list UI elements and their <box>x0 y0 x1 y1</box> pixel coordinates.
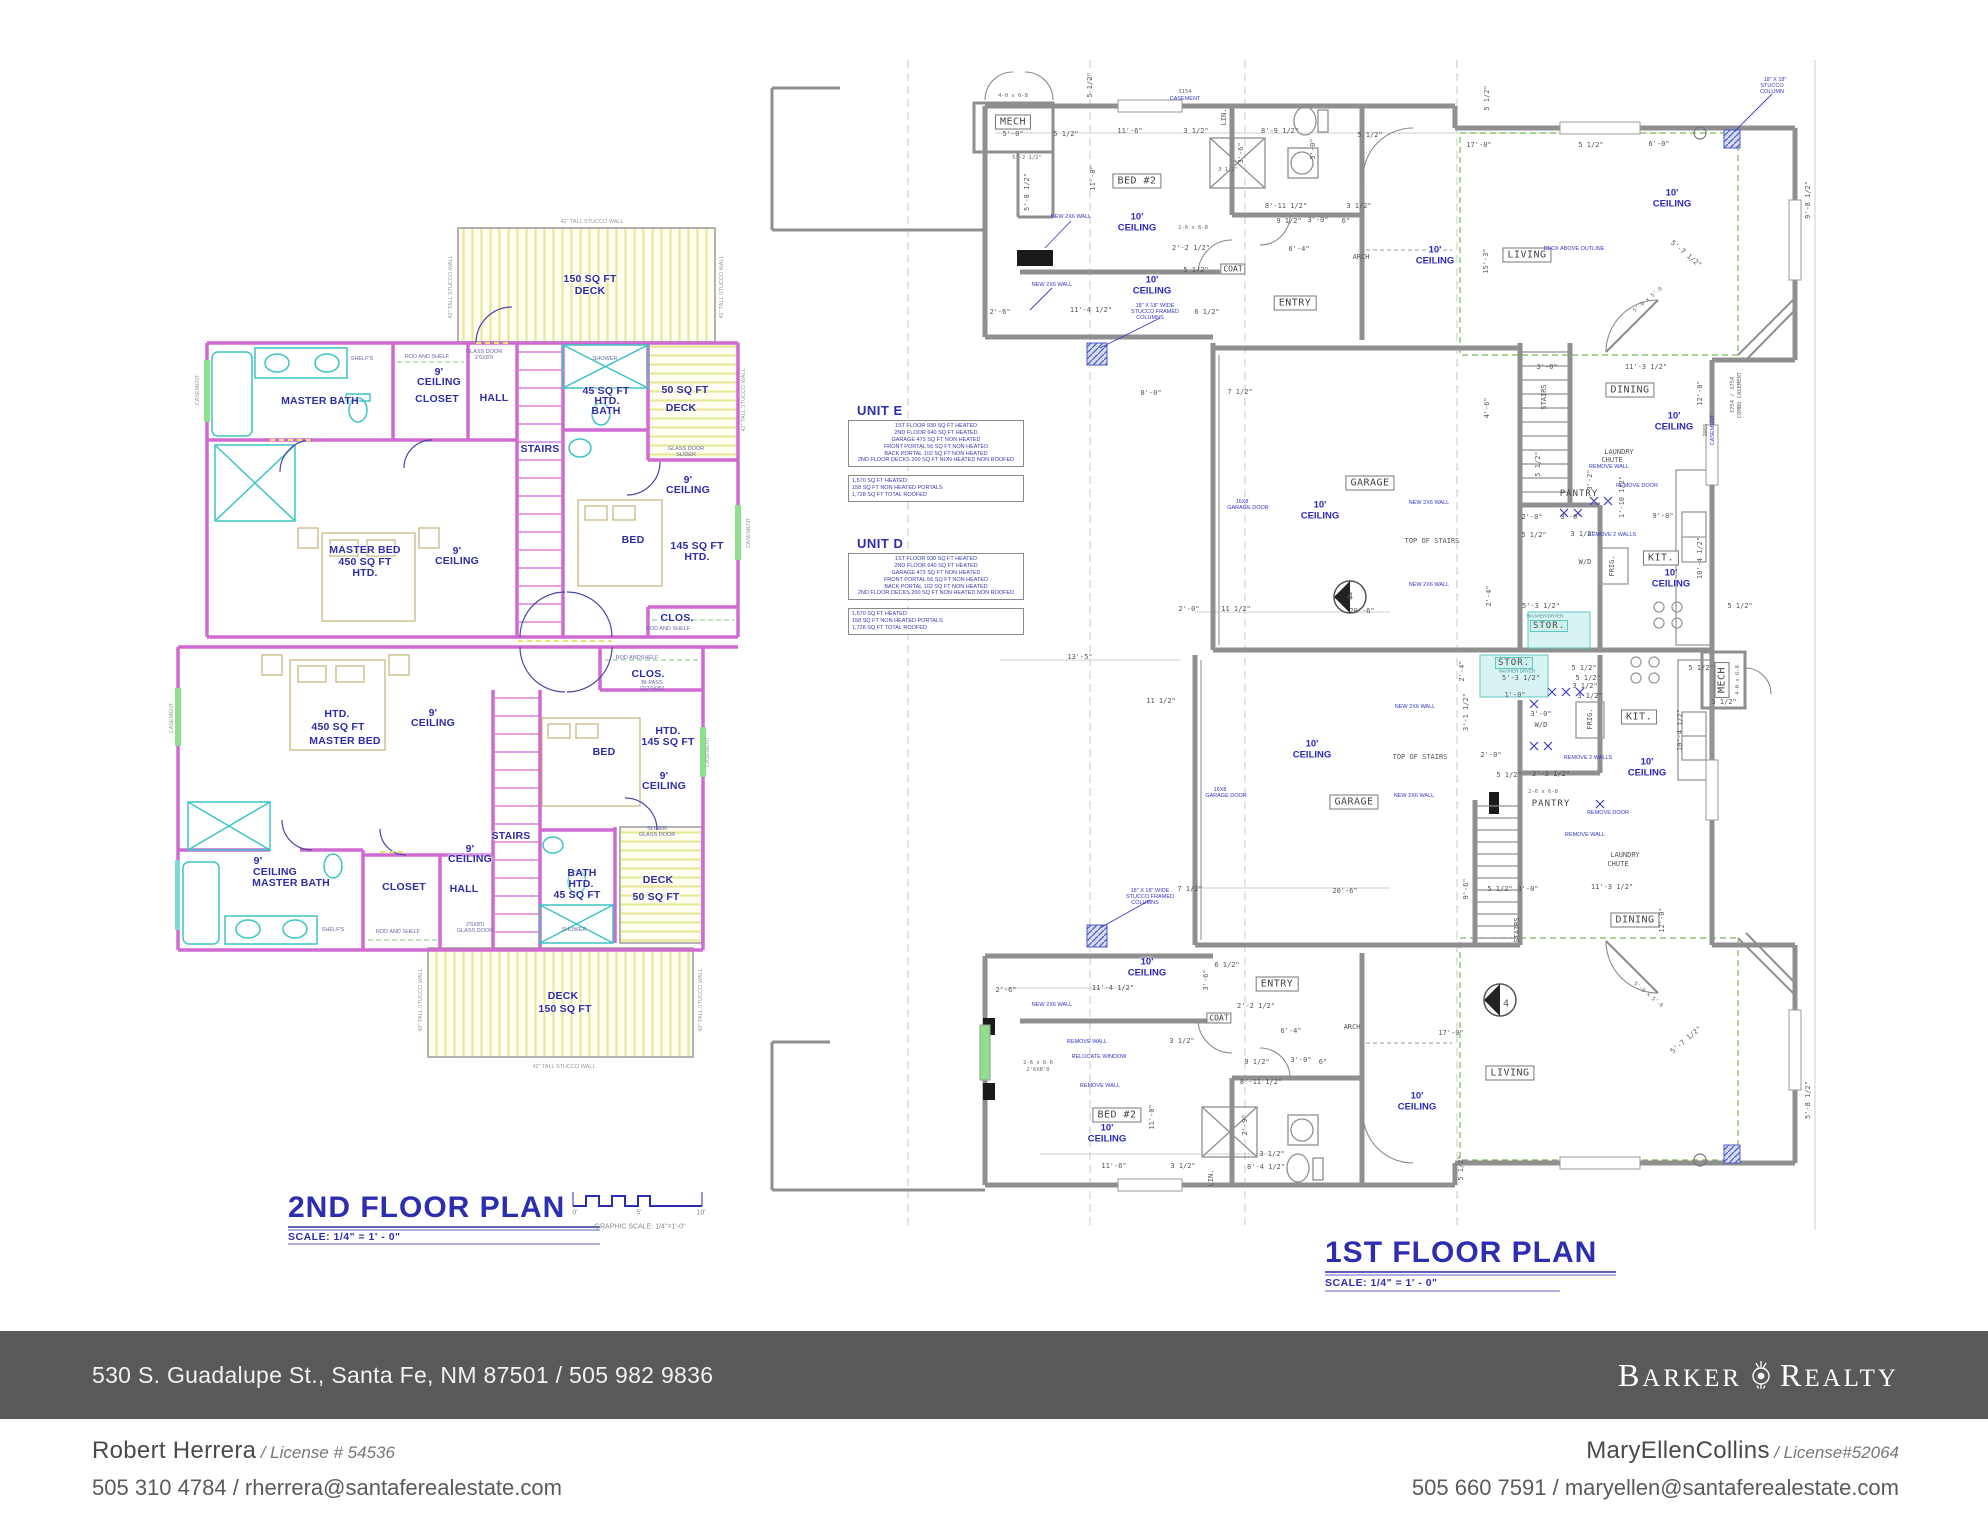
floor2-label: HALL <box>450 883 479 895</box>
floor1-label: 5'-3 1/2" <box>1502 674 1540 682</box>
floor1-label: CEILING <box>1416 256 1455 267</box>
floor1-label: 3 1/2" <box>1572 682 1597 690</box>
agent-license: / License # 54536 <box>261 1443 395 1462</box>
floor1-scale-note: SCALE: 1/4" = 1' - 0" <box>1325 1277 1438 1289</box>
floor1-label: 3'-3 1/2" <box>1532 770 1570 778</box>
floor1-label: 3 1/2" <box>1577 692 1602 700</box>
floor1-label: 5'-8 1/2" <box>1023 173 1031 211</box>
floor1-label: COMBO CASEMENT <box>1737 372 1743 418</box>
floor1-label: 9 1/2" <box>1276 217 1301 225</box>
floor1-label: 17'-0" <box>1466 141 1491 149</box>
floor1-label: CEILING <box>1088 1134 1127 1145</box>
floor2-furniture <box>262 500 662 806</box>
floor1-label: CEILING <box>1118 223 1157 234</box>
floor1-label: CEILING <box>1293 750 1332 761</box>
floor1-label: NEW 2X6 WALL <box>1032 1002 1072 1008</box>
unit-box-line: 1ST FLOOR 930 SQ FT HEATED <box>852 423 1020 430</box>
floor2-label: DECK <box>643 874 674 886</box>
floor2-label: MASTER BED <box>329 544 400 556</box>
floor1-label: 6" <box>1319 1058 1327 1066</box>
floor2-label: GLASS DOOR <box>457 928 493 934</box>
graphic-scale-label: 5' <box>636 1210 641 1217</box>
floor2-label: SHOWER <box>562 927 587 933</box>
floor2-label: 50 SQ FT <box>661 384 708 396</box>
floor2-scale-note: SCALE: 1/4" = 1' - 0" <box>288 1231 401 1243</box>
floor1-label: 3'-6" <box>1237 142 1245 163</box>
floor1-label: 3 1/2" <box>1169 1037 1194 1045</box>
floor1-label: CEILING <box>1301 511 1340 522</box>
floor1-label: 6'-4" <box>1288 245 1309 253</box>
floor2-label: ROD ANDSHELF <box>616 655 659 661</box>
unit-box-line: BACK PORTAL 102 SQ FT NON HEATED <box>852 451 1020 458</box>
unit-box-line: 1,570 SQ FT HEATED <box>852 611 1020 618</box>
agents-section: Robert Herrera / License # 54536 505 310… <box>0 1419 1988 1536</box>
floor2-label: 42" TALL STUCCO WALL <box>698 968 704 1031</box>
floor1-label: 10' <box>1665 568 1678 579</box>
floor1-label: 10' <box>1146 275 1159 286</box>
floor2-label: BATH <box>591 405 620 417</box>
floor1-label: 11 1/2" <box>1146 697 1176 705</box>
floor1-label: 9'-6" <box>1462 878 1470 899</box>
office-address: 530 S. Guadalupe St., Santa Fe, NM 87501… <box>92 1331 713 1419</box>
floor1-label: 3 1/2" <box>1259 1150 1284 1158</box>
floor1-label: LIVING <box>1485 1066 1534 1081</box>
floor2-label: CLOS. <box>631 668 664 680</box>
floor1-label: DINING <box>1605 383 1654 398</box>
floor1-label: NEW 2X6 WALL <box>1032 282 1072 288</box>
unit-area-box: 1ST FLOOR 930 SQ FT HEATED2ND FLOOR 640 … <box>848 420 1024 467</box>
agent-license: / License#52064 <box>1774 1443 1899 1462</box>
floor2-label: HTD. <box>684 551 709 563</box>
floor1-label: 11'-4 1/2" <box>1092 984 1134 992</box>
floor1-label: 5 1/2" <box>1727 602 1752 610</box>
floor2-label: CLOSET <box>415 393 459 405</box>
floor1-label: 5 1/2" <box>1086 72 1094 97</box>
floor2-label: BED <box>593 746 616 758</box>
floor2-label: SLIDER <box>676 452 696 458</box>
unit-box-line: 158 SQ FT NON HEATED PORTALS <box>852 485 1020 492</box>
floor1-label: 17'-0" <box>1438 1029 1463 1037</box>
floor1-label: TOP OF STAIRS <box>1405 537 1460 545</box>
floor1-label: 5 1/2" <box>1578 141 1603 149</box>
floor2-label: ROD AND SHELF <box>646 626 690 632</box>
floor1-label: NEW 2X6 WALL <box>1409 582 1449 588</box>
floor1-label: CEILING <box>1653 199 1692 210</box>
floor1-label: 5 1/2" <box>1457 1155 1465 1180</box>
floor1-label: CEILING <box>1628 768 1667 779</box>
floor1-label: 10' <box>1141 957 1154 968</box>
floor2-label: CEILING <box>417 376 461 388</box>
unit-total-box: 1,570 SQ FT HEATED158 SQ FT NON HEATED P… <box>848 475 1024 502</box>
floor2-label: CASEMENT <box>705 737 711 768</box>
floor2-label: SHELF'S <box>351 356 373 362</box>
floor1-label: COAT <box>1220 264 1245 275</box>
floor2-label: DECK <box>666 402 697 414</box>
floor2-label: CEILING <box>411 717 455 729</box>
floor1-label: 5'-0" <box>1002 130 1023 138</box>
floor1-label: 11'-4 1/2" <box>1070 306 1112 314</box>
floor2-label: 42" TALL STUCCO WALL <box>418 968 424 1031</box>
floor1-label: 9'-0" <box>1652 512 1673 520</box>
floor2-label: CLOS. <box>660 612 693 624</box>
unit-box-line: 2ND FLOOR 640 SQ FT HEATED <box>852 430 1020 437</box>
floor1-label: 2-6 x 6-8 <box>1178 225 1208 231</box>
agent-contact: 505 660 7591 / maryellen@santaferealesta… <box>1412 1475 1899 1501</box>
floor2-label: STAIRS <box>521 443 560 455</box>
floor2-label: CEILING <box>642 780 686 792</box>
unit-box-line: FRONT PORTAL 56 SQ FT NON HEATED <box>852 577 1020 584</box>
unit-box-line: BACK PORTAL 102 SQ FT NON HEATED <box>852 584 1020 591</box>
floor1-label: 5 1/2" <box>1575 674 1600 682</box>
floor1-label: CEILING <box>1398 1102 1437 1113</box>
floor1-label: 1'-0" <box>1504 691 1525 699</box>
floor1-label: COLUMNS <box>1136 315 1164 321</box>
floor1-label: 10' <box>1641 757 1654 768</box>
unit-box-line: GARAGE 473 SQ FT NON HEATED <box>852 437 1020 444</box>
floor1-label: 13'-5" <box>1067 653 1092 661</box>
floor1-label: 4 <box>1347 592 1353 603</box>
floor1-label: 9 1/2" <box>1244 1058 1269 1066</box>
floor1-label: MECH <box>995 115 1031 130</box>
floor1-label: 4-0 x 6-8 <box>998 93 1028 99</box>
floor2-label: MASTER BATH <box>252 877 330 889</box>
floor1-label: 2-6 x 6-8 <box>1528 789 1558 795</box>
floor1-label: 3 1/2" <box>1170 1162 1195 1170</box>
floor1-label: REMOVE WALL <box>1080 1083 1120 1089</box>
graphic-scale-label: 0' <box>572 1210 577 1217</box>
floor2-label: STAIRS <box>492 830 531 842</box>
floor1-label: TOP OF STAIRS <box>1393 753 1448 761</box>
brand-word-barker: BARKER <box>1618 1357 1742 1394</box>
floor1-label: 10' <box>1101 1123 1114 1134</box>
unit-box-line: FRONT PORTAL 56 SQ FT NON HEATED <box>852 444 1020 451</box>
agent-name: Robert Herrera <box>92 1437 256 1464</box>
footer-bar: 530 S. Guadalupe St., Santa Fe, NM 87501… <box>0 1331 1988 1419</box>
floor2-label: CASEMENT <box>169 703 175 734</box>
floor2-label: SHOWER <box>593 356 618 362</box>
agent-maryellen-collins: MaryEllenCollins / License#52064 505 660… <box>1412 1437 1899 1501</box>
floor1-label: 15'-3" <box>1482 248 1490 273</box>
graphic-scale <box>573 1192 702 1206</box>
floor1-label: 8'-11 1/2" <box>1240 1078 1282 1086</box>
floor2-label: 145 SQ FT <box>641 736 694 748</box>
floor1-label: COAT <box>1206 1013 1231 1024</box>
floor1-label: 2'-4" <box>1485 585 1493 606</box>
floor2-label: 150 SQ FT <box>538 1003 591 1015</box>
unit-box-line: 1,570 SQ FT HEATED <box>852 478 1020 485</box>
floor1-label: STAIRS <box>1540 384 1548 409</box>
floor1-label: CASEMENT <box>1710 415 1716 446</box>
floor1-label: 2'-6" <box>989 308 1010 316</box>
floor2-label: CEILING <box>666 484 710 496</box>
floor1-label: STAIRS <box>1513 917 1521 942</box>
floor2-label: (2)2'0X8'0 <box>640 686 665 692</box>
barker-realty-logo-icon <box>1748 1360 1774 1390</box>
floor1-label: 3'-0" <box>1290 1056 1311 1064</box>
agent-name: MaryEllenCollins <box>1586 1437 1770 1464</box>
floor1-label: 5 1/2" <box>1483 85 1491 110</box>
floor2-title: 2ND FLOOR PLAN <box>288 1191 565 1225</box>
floor1-label: 3'-6" <box>1202 969 1210 990</box>
floor1-label: 10' <box>1429 245 1442 256</box>
floor2-label: HTD. <box>352 567 377 579</box>
floor1-label: 10' <box>1666 188 1679 199</box>
unit-box-line: GARAGE 473 SQ FT NON HEATED <box>852 570 1020 577</box>
floor2-label: DECK <box>548 990 579 1002</box>
floor1-label: 3 1/2" <box>1346 202 1371 210</box>
unit-box-line: 1,728 SQ FT TOTAL ROOFED <box>852 625 1020 632</box>
floor2-label: CASEMENT <box>746 518 752 549</box>
floor1-label: 8'-11 1/2" <box>1265 202 1307 210</box>
floor2-label: 45 SQ FT <box>553 889 600 901</box>
floor1-kitchen-fixtures <box>1576 470 1712 780</box>
floor1-label: 5 1/2" <box>1534 451 1542 476</box>
floor1-label: GARAGE DOOR <box>1205 793 1247 799</box>
floor1-label: KIT. <box>1643 551 1679 566</box>
floor2-label: CASEMENT <box>195 375 201 406</box>
unit-box-line: 2ND FLOOR 640 SQ FT HEATED <box>852 563 1020 570</box>
floor1-label: FRIG. <box>1586 708 1594 729</box>
floor-plan-flyer: 150 SQ FTDECK42" TALL STUCCO WALL42" TAL… <box>0 0 1988 1536</box>
floor1-label: 10' <box>1668 411 1681 422</box>
floor2-label: 42" TALL STUCCO WALL <box>741 368 747 431</box>
floor1-label: GARAGE <box>1345 476 1394 491</box>
floor2-label: 42" TALL STUCCO WALL <box>532 1064 595 1070</box>
floor1-label: COLUMNS <box>1131 900 1159 906</box>
unit-total-box: 1,570 SQ FT HEATED158 SQ FT NON HEATED P… <box>848 608 1024 635</box>
floor1-label: BED #2 <box>1112 174 1161 189</box>
floor1-label: NEW 2X6 WALL <box>1409 500 1449 506</box>
floor2-label: CEILING <box>435 555 479 567</box>
floor1-label: 10' <box>1314 500 1327 511</box>
floor1-label: 4'-6" <box>1483 397 1491 418</box>
floor1-label: 3'-0" <box>1530 710 1551 718</box>
floor1-label: 7 1/2" <box>1227 388 1252 396</box>
floor1-label: W/D <box>1535 721 1548 729</box>
floor1-label: 20'-6" <box>1349 607 1374 615</box>
floorplan-linework <box>0 0 1988 1536</box>
floor1-label: LIN. <box>1220 109 1228 126</box>
floor1-label: WASHER/DRYER <box>1527 614 1564 619</box>
barker-realty-logo: BARKER REALTY <box>1618 1331 1899 1419</box>
floor2-label: 450 SQ FT <box>311 721 364 733</box>
floor2-label: CEILING <box>448 853 492 865</box>
floor1-label: ARCH <box>1344 1023 1361 1031</box>
floor1-label: 2'-0" <box>1521 513 1542 521</box>
floor1-label: 6 1/2" <box>1214 961 1239 969</box>
floor2-label: DECK <box>575 285 606 297</box>
floor1-label: 5 1/2" <box>1571 664 1596 672</box>
floor1-label: 3'-0" <box>1536 363 1557 371</box>
floor1-label: 5'-3 1/2" <box>1522 602 1560 610</box>
floor1-label: REMOVE WALL <box>1589 464 1629 470</box>
floor1-label: 1'-10 1/2" <box>1618 476 1626 518</box>
floor1-label: MECH <box>1715 662 1730 698</box>
floor1-label: 2'6X8'0 <box>1026 1067 1049 1073</box>
unit-box-line: 158 SQ FT NON HEATED PORTALS <box>852 618 1020 625</box>
floor1-label: ENTRY <box>1256 977 1299 992</box>
floor1-label: NEW 2X6 WALL <box>1394 793 1434 799</box>
floor1-label: 8'-4 1/2" <box>1247 1163 1285 1171</box>
graphic-scale-label: GRAPHIC SCALE: 1/4"=1'-0" <box>595 1224 686 1231</box>
floor2-label: 150 SQ FT <box>563 273 616 285</box>
floor1-label: 3 1/2" <box>1570 530 1595 538</box>
floor1-label: CHUTE <box>1601 456 1622 464</box>
floor1-label: 10' <box>1411 1091 1424 1102</box>
floor1-label: 3 1/2" <box>1183 127 1208 135</box>
floor1-label: 12'-0" <box>1696 380 1704 405</box>
floor1-label: KIT. <box>1621 710 1657 725</box>
floor1-title: 1ST FLOOR PLAN <box>1325 1236 1597 1270</box>
unit-box-line: 1,728 SQ FT TOTAL ROOFED <box>852 492 1020 499</box>
floor1-label: LIN. <box>1207 1170 1215 1187</box>
floor1-label: 11'-0" <box>1148 1104 1156 1129</box>
stucco-columns <box>1087 127 1740 1166</box>
floor1-label: 4 <box>1503 999 1509 1010</box>
floor1-label: 9'-8 1/2" <box>1804 181 1812 219</box>
floor1-label: 5 1/2" <box>1053 130 1078 138</box>
unit-area-box: 1ST FLOOR 930 SQ FT HEATED2ND FLOOR 640 … <box>848 553 1024 600</box>
floor1-label: 3'-0" <box>1517 885 1538 893</box>
floor1-label: PANTRY <box>1532 799 1571 809</box>
floor2-label: 42" TALL STUCCO WALL <box>448 255 454 318</box>
floor1-label: 11'-6" <box>1101 1162 1126 1170</box>
floor2-label: MASTER BED <box>309 735 380 747</box>
floor1-label: 3 1/2" <box>1218 167 1238 173</box>
floor1-label: ARCH <box>1353 253 1370 261</box>
floor1-label: REMOVE WALL <box>1565 832 1605 838</box>
floor1-label: 8'-0" <box>1140 389 1161 397</box>
floor1-label: FRIG. <box>1608 555 1616 576</box>
floor1-label: 6" <box>1342 217 1350 225</box>
floor1-label: NEW 2X6 WALL <box>1051 214 1091 220</box>
floor1-label: 5 1/2" <box>1496 771 1521 779</box>
floor1-label: 3'-2" <box>1586 469 1594 490</box>
floor1-label: WASHER DRYER <box>1499 669 1536 674</box>
floor1-label: GARAGE <box>1329 795 1378 810</box>
unit-box-line: 1ST FLOOR 930 SQ FT HEATED <box>852 556 1020 563</box>
floor1-label: BED #2 <box>1092 1108 1141 1123</box>
unit-heading: UNIT E <box>857 403 903 418</box>
floor1-label: 10'-4 1/2" <box>1676 709 1684 751</box>
floor2-label: 42" TALL STUCCO WALL <box>560 219 623 225</box>
floor1-label: DINING <box>1610 913 1659 928</box>
floor1-label: 3 1/2" <box>1711 698 1736 706</box>
floor1-label: CEILING <box>1652 579 1691 590</box>
floor1-label: 11'-6" <box>1117 127 1142 135</box>
floor1-label: CEILING <box>1128 968 1167 979</box>
floor2-label: BED <box>622 534 645 546</box>
floor1-label: 11 1/2" <box>1221 605 1251 613</box>
floor1-label: 5 1/2" <box>1521 531 1546 539</box>
floor1-label: 2'-2 1/2" <box>1172 244 1210 252</box>
floor1-label: 2'-4" <box>1458 660 1466 681</box>
floor2-label: SHELF'S <box>322 927 344 933</box>
floor1-label: RELOCATE WINDOW <box>1072 1054 1127 1060</box>
floor1-label: 5 1/2" <box>1688 664 1713 672</box>
floor1-label: 6'-4" <box>1280 1027 1301 1035</box>
floor1-label: CASEMENT <box>1170 96 1201 102</box>
floor1-label: 11'-3 1/2" <box>1591 883 1633 891</box>
floor2-label: ROD AND SHELF <box>376 929 420 935</box>
floor1-label: 2'-2 1/2" <box>1237 1002 1275 1010</box>
floor1-label: 10' <box>1131 212 1144 223</box>
floor1-label: 20'-6" <box>1332 887 1357 895</box>
floor1-label: W/D <box>1579 558 1592 566</box>
floor2-label: HTD. <box>324 708 349 720</box>
floor1-label: LAUNDRY <box>1604 448 1634 456</box>
floor1-label: 11'-3 1/2" <box>1625 363 1667 371</box>
floor1-label: 5'-8 1/2" <box>1804 1081 1812 1119</box>
graphic-scale-label: 10' <box>696 1210 705 1217</box>
floor1-label: 11'-0" <box>1089 165 1097 190</box>
floor1-label: 10' <box>1306 739 1319 750</box>
floor1-label: REMOVE WALL <box>1067 1039 1107 1045</box>
floor2-label: GLASS DOOR <box>639 832 675 838</box>
floor1-label: 2'-0" <box>1178 605 1199 613</box>
floor1-label: NEW 2X6 WALL <box>1395 704 1435 710</box>
floor1-label: GARAGE DOOR <box>1227 505 1269 511</box>
floor1-label: 6'-0" <box>1648 140 1669 148</box>
floor2-label: MASTER BATH <box>281 395 359 407</box>
floor1-label: 3'-1 1/2" <box>1462 693 1470 731</box>
floor1-label: CEILING <box>1655 422 1694 433</box>
floor1-label: COLUMN <box>1760 89 1784 95</box>
floor1-label: 10'-4 1/2" <box>1696 537 1704 579</box>
unit-box-line: 2ND FLOOR DECKS 200 SQ FT NON HEATED NON… <box>852 457 1020 464</box>
floor1-label: 5 1/2" <box>1487 885 1512 893</box>
floor1-label: 2'-6" <box>995 986 1016 994</box>
floor1-label: 5'-0" <box>1309 138 1317 159</box>
floor1-label: 8'-9 1/2" <box>1261 127 1299 135</box>
floor1-label: ENTRY <box>1274 296 1317 311</box>
floor1-label: REMOVE 2 WALLS <box>1564 755 1612 761</box>
floor2-label: HALL <box>480 392 509 404</box>
floor1-label: REMOVE DOOR <box>1587 810 1629 816</box>
floor1-label: 4-0 x 6-8 <box>1735 665 1741 695</box>
agent-contact: 505 310 4784 / rherrera@santaferealestat… <box>92 1475 562 1501</box>
floor1-label: 2955 <box>1703 423 1709 436</box>
floor1-label: STOR. <box>1530 620 1568 632</box>
floor1-label: 5 1/2" <box>1357 131 1382 139</box>
brand-word-realty: REALTY <box>1780 1357 1899 1394</box>
floor1-label: STOR. <box>1495 657 1533 669</box>
agent-robert-herrera: Robert Herrera / License # 54536 505 310… <box>92 1437 562 1501</box>
floor1-label: DECK ABOVE OUTLINE <box>1544 246 1605 252</box>
floor2-label: 2'6X8'0 <box>475 355 493 361</box>
floor1-label: 12'-0" <box>1658 907 1666 932</box>
floor2-label: ROD AND SHELF <box>405 354 449 360</box>
floor1-label: 3'-0" <box>1560 513 1581 521</box>
floor1-label: CEILING <box>1133 286 1172 297</box>
floor1-label: 2'-0" <box>1480 751 1501 759</box>
floor1-label: 3154 <box>1178 89 1191 95</box>
floor1-label: LAUNDRY <box>1610 851 1640 859</box>
floor1-label: 6 1/2" <box>1194 308 1219 316</box>
floor1-label: CHUTE <box>1607 860 1628 868</box>
unit-heading: UNIT D <box>857 536 903 551</box>
floor1-label: 2'-9" <box>1241 1114 1249 1135</box>
floor2-label: 50 SQ FT <box>632 891 679 903</box>
floor1-label: 3754 / 3754 <box>1730 377 1736 413</box>
floor1-label: 3'-0" <box>1307 216 1328 224</box>
floor2-label: 42" TALL STUCCO WALL <box>719 255 725 318</box>
floor1-label: 7 1/2" <box>1177 885 1202 893</box>
floor1-label: 2-6 x 6-6 <box>1023 1060 1053 1066</box>
floor1-label: 5'-2 1/2" <box>1012 155 1042 161</box>
floor2-label: CLOSET <box>382 881 426 893</box>
unit-box-line: 2ND FLOOR DECKS 200 SQ FT NON HEATED NON… <box>852 590 1020 597</box>
